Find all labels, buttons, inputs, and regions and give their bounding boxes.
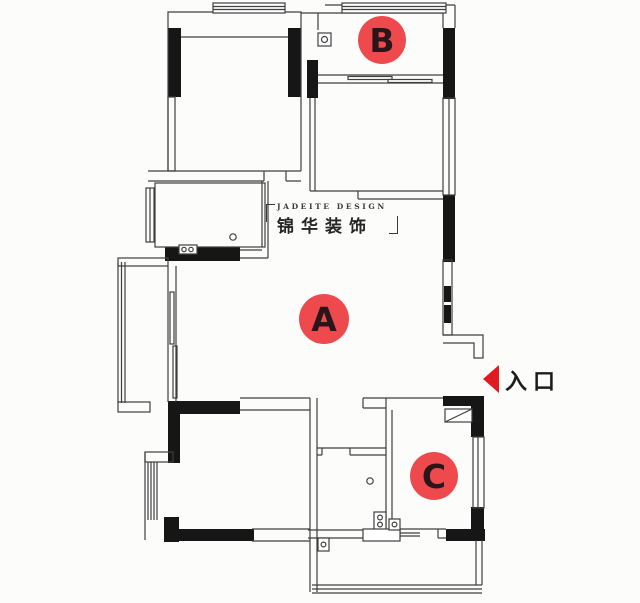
room-label-b: B: [358, 16, 406, 64]
floor-plan: A B C 入口 JADEITE DESIGN 锦华装饰: [0, 0, 640, 603]
room-b-letter: B: [369, 21, 394, 60]
room-label-c: C: [410, 452, 458, 500]
entrance-marker: 入口: [483, 365, 561, 395]
room-label-a: A: [299, 294, 349, 344]
entrance-arrow-icon: [483, 365, 499, 393]
entrance-label: 入口: [505, 369, 561, 395]
floor-plan-canvas: A B C 入口: [0, 0, 640, 603]
room-c-letter: C: [422, 457, 446, 496]
room-a-letter: A: [311, 300, 337, 339]
